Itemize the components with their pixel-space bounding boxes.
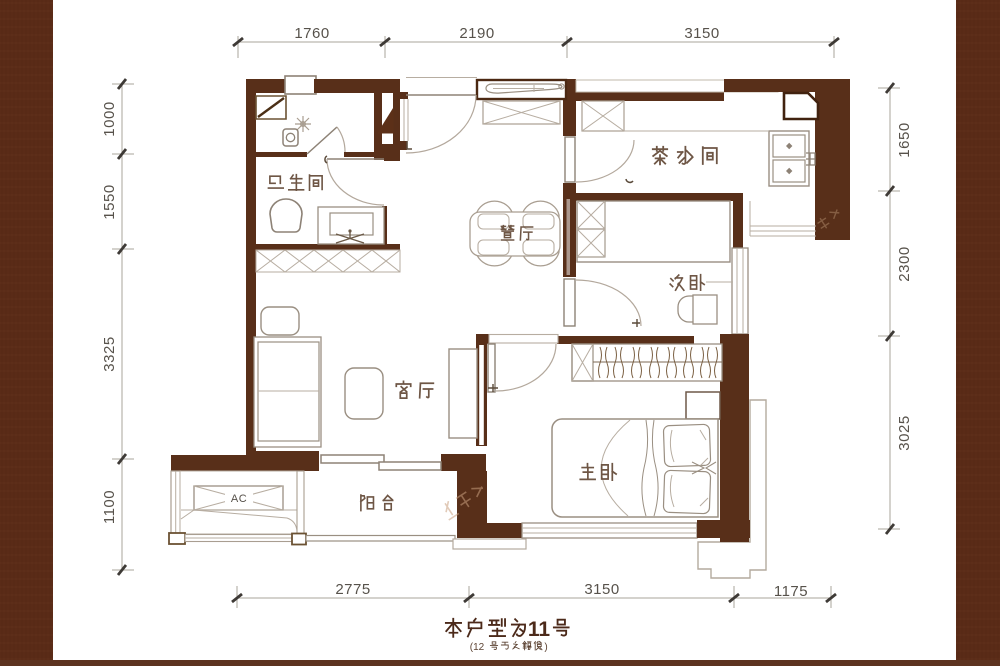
svg-text:3325: 3325: [101, 336, 118, 371]
svg-text:1760: 1760: [294, 25, 329, 42]
svg-text:1650: 1650: [896, 122, 913, 157]
svg-text:1000: 1000: [101, 101, 118, 136]
svg-text:1175: 1175: [774, 583, 808, 600]
svg-text:3025: 3025: [896, 415, 913, 450]
svg-text:(12: (12: [470, 642, 485, 653]
svg-text:3150: 3150: [584, 581, 619, 598]
svg-text:1100: 1100: [101, 490, 118, 524]
svg-text:3150: 3150: [684, 25, 719, 42]
svg-text:1550: 1550: [101, 184, 118, 219]
svg-text:): ): [544, 642, 547, 653]
svg-text:AC: AC: [231, 493, 247, 505]
svg-text:2775: 2775: [335, 581, 370, 598]
svg-text:2190: 2190: [459, 25, 494, 42]
svg-text:2300: 2300: [896, 246, 913, 281]
svg-text:11: 11: [528, 618, 551, 641]
